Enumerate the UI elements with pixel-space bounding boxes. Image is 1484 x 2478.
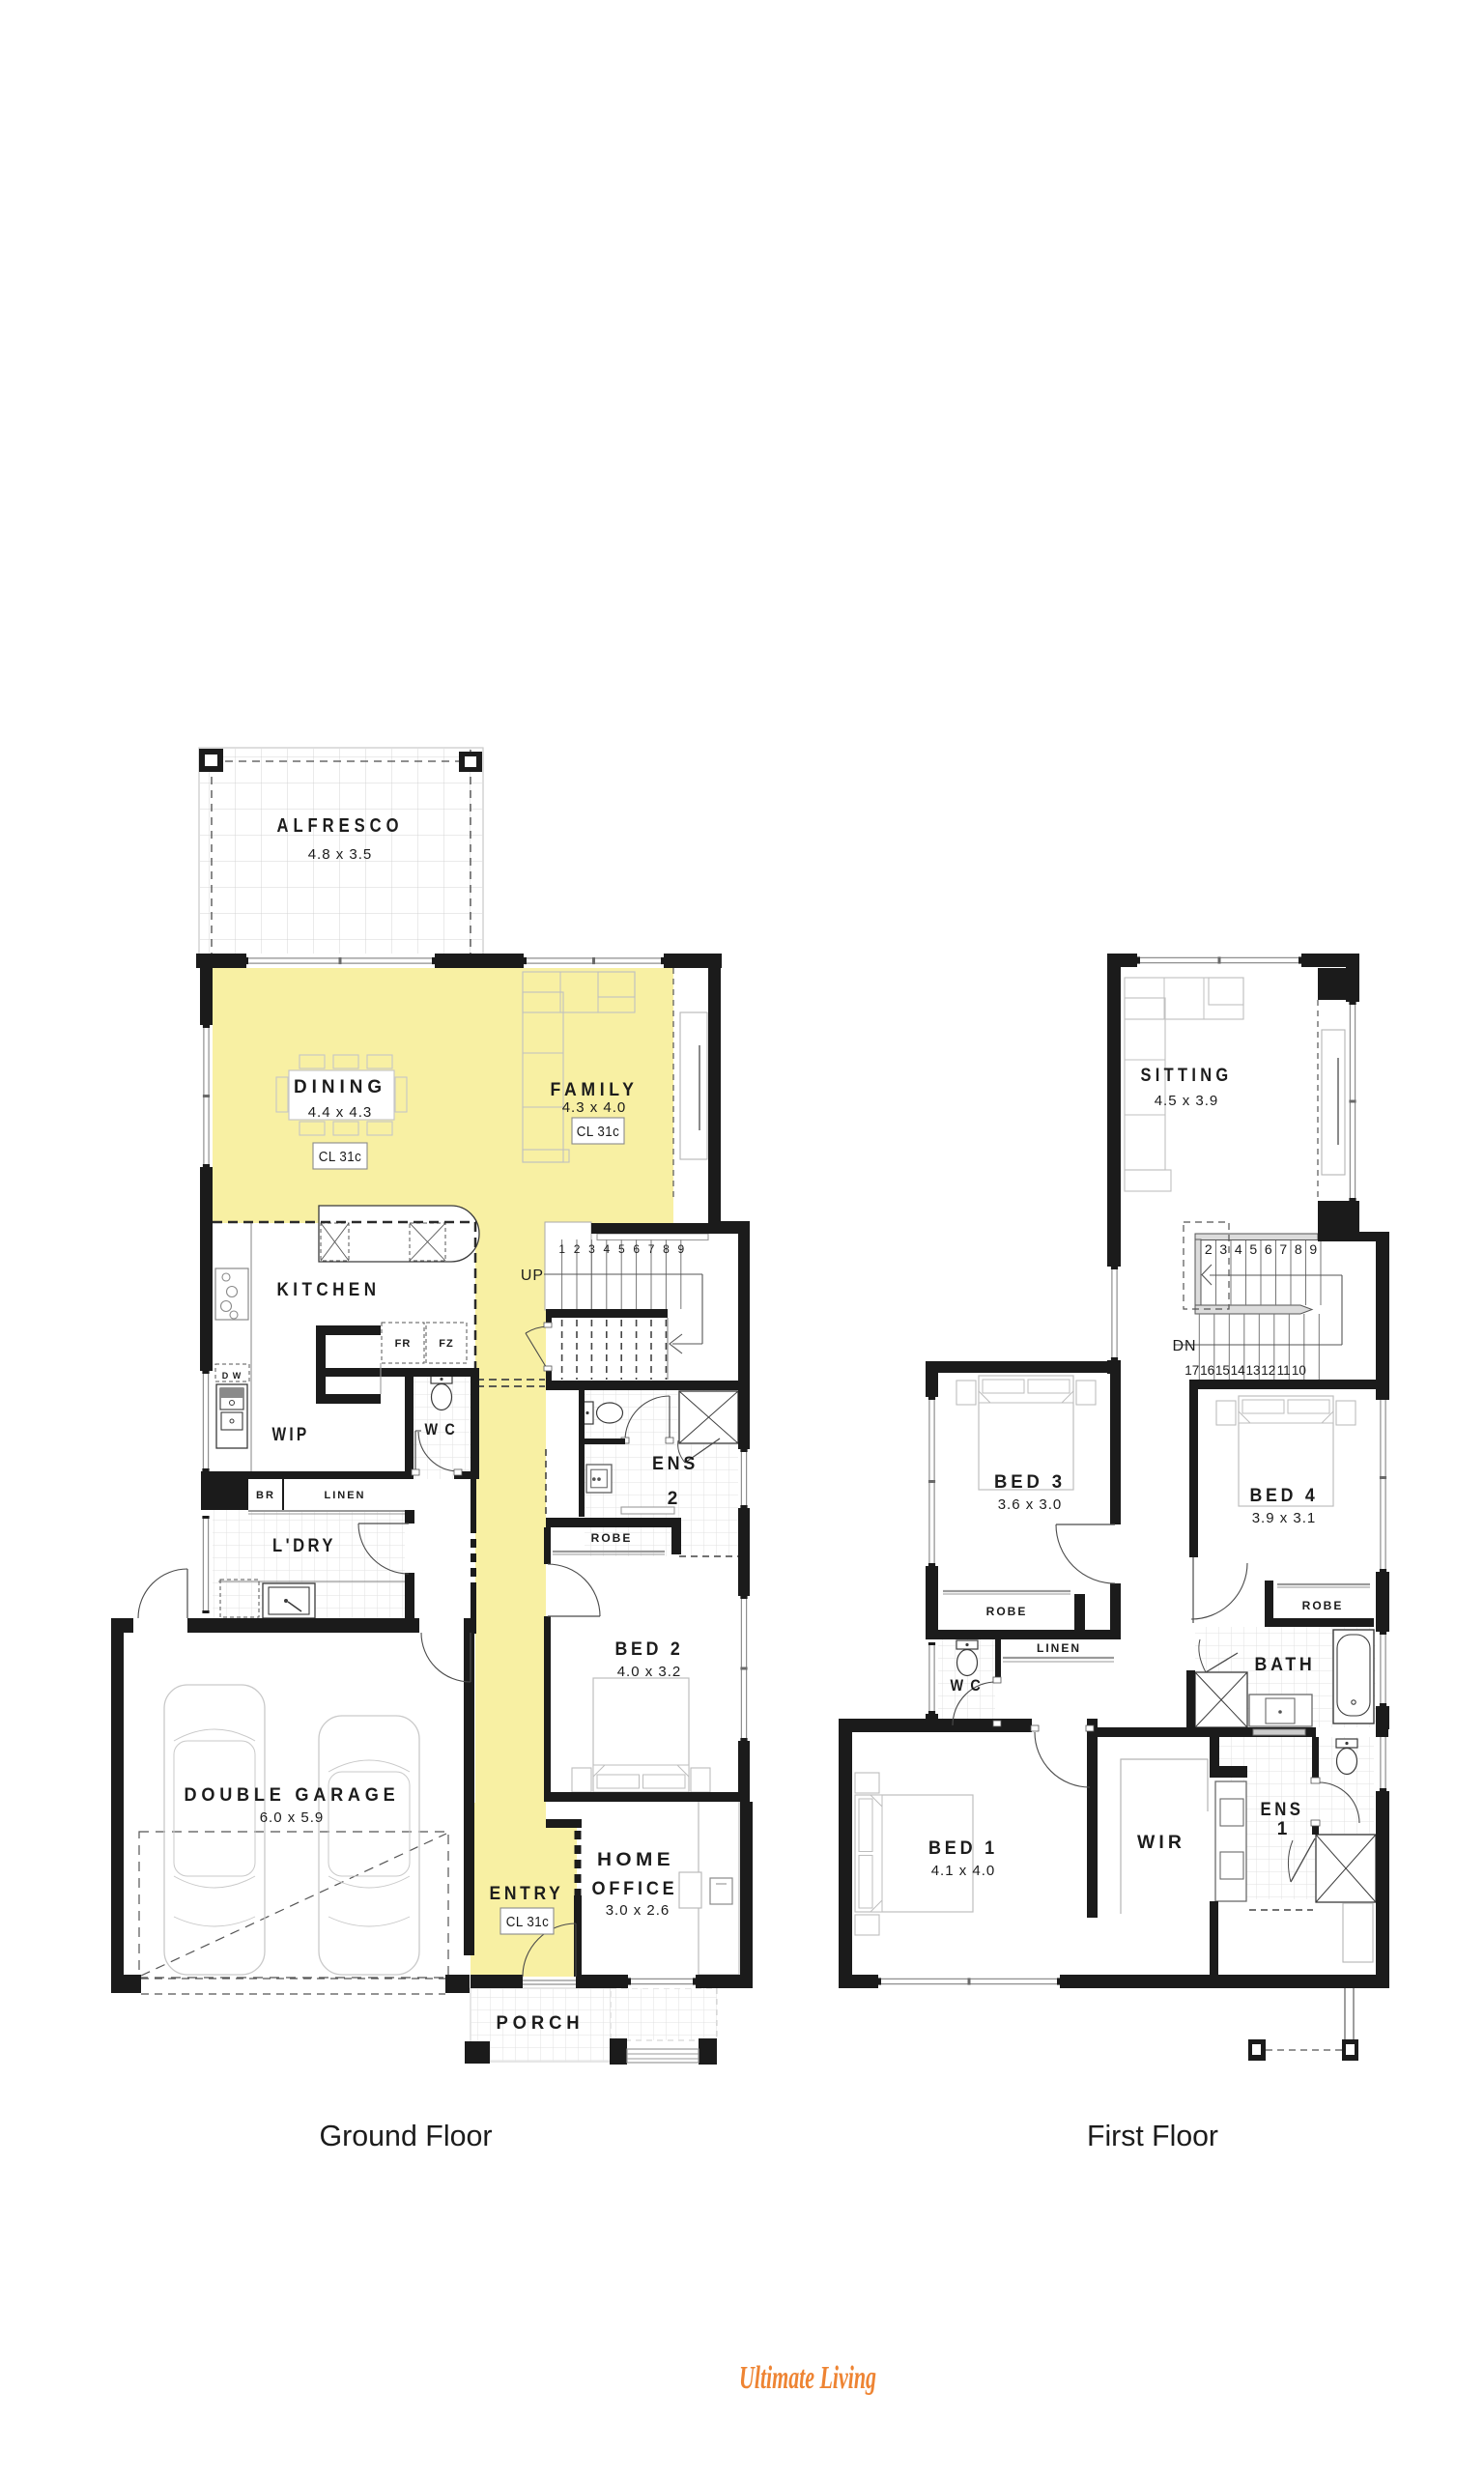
svg-text:ENTRY: ENTRY (490, 1884, 564, 1904)
svg-text:PORCH: PORCH (497, 2013, 585, 2034)
svg-text:DN: DN (1172, 1338, 1196, 1354)
svg-text:WIP: WIP (272, 1425, 310, 1445)
svg-text:5: 5 (618, 1242, 625, 1256)
svg-text:HOME: HOME (597, 1850, 674, 1870)
svg-text:LINEN: LINEN (325, 1490, 366, 1501)
svg-text:3: 3 (588, 1242, 595, 1256)
svg-text:KITCHEN: KITCHEN (277, 1280, 381, 1300)
svg-text:LINEN: LINEN (1037, 1641, 1081, 1655)
svg-text:BED 1: BED 1 (928, 1838, 998, 1859)
svg-text:2: 2 (668, 1489, 678, 1509)
svg-text:8: 8 (1295, 1241, 1302, 1257)
svg-text:17: 17 (1184, 1363, 1199, 1378)
svg-text:First Floor: First Floor (1087, 2119, 1218, 2152)
svg-text:UP: UP (521, 1267, 544, 1284)
svg-text:4: 4 (1235, 1241, 1242, 1257)
svg-text:14: 14 (1231, 1363, 1246, 1378)
svg-text:DINING: DINING (294, 1077, 386, 1097)
svg-text:7: 7 (648, 1242, 655, 1256)
svg-text:7: 7 (1279, 1241, 1287, 1257)
svg-text:W C: W C (425, 1420, 457, 1438)
svg-text:FAMILY: FAMILY (551, 1080, 639, 1100)
svg-text:11: 11 (1277, 1363, 1291, 1378)
svg-text:OFFICE: OFFICE (592, 1879, 678, 1899)
svg-text:16: 16 (1200, 1363, 1214, 1378)
svg-text:ROBE: ROBE (986, 1605, 1028, 1618)
svg-text:6: 6 (1265, 1241, 1272, 1257)
svg-text:BR: BR (256, 1490, 275, 1501)
svg-text:4.5 x 3.9: 4.5 x 3.9 (1155, 1093, 1219, 1109)
svg-text:BED 3: BED 3 (994, 1472, 1066, 1493)
svg-text:12: 12 (1261, 1363, 1275, 1378)
svg-text:9: 9 (678, 1242, 685, 1256)
svg-text:3.6 x 3.0: 3.6 x 3.0 (998, 1496, 1063, 1513)
svg-text:4.0 x 3.2: 4.0 x 3.2 (617, 1664, 682, 1680)
svg-text:6.0 x 5.9: 6.0 x 5.9 (260, 1809, 325, 1826)
svg-text:WIR: WIR (1137, 1833, 1185, 1853)
svg-text:ENS: ENS (652, 1454, 699, 1474)
svg-text:D W: D W (222, 1371, 243, 1381)
svg-text:DOUBLE GARAGE: DOUBLE GARAGE (185, 1785, 400, 1806)
svg-text:8: 8 (663, 1242, 670, 1256)
svg-text:3.0 x 2.6: 3.0 x 2.6 (606, 1902, 671, 1919)
svg-text:CL 31c: CL 31c (577, 1124, 620, 1140)
svg-text:L'DRY: L'DRY (272, 1536, 336, 1556)
svg-text:6: 6 (633, 1242, 640, 1256)
svg-text:1: 1 (558, 1242, 565, 1256)
svg-text:BATH: BATH (1255, 1655, 1316, 1675)
svg-text:CL 31c: CL 31c (319, 1149, 362, 1165)
svg-text:4.3 x 4.0: 4.3 x 4.0 (562, 1099, 627, 1116)
svg-text:9: 9 (1309, 1241, 1317, 1257)
svg-text:Ultimate Living: Ultimate Living (739, 2360, 876, 2396)
svg-text:BED 4: BED 4 (1250, 1486, 1319, 1506)
svg-text:13: 13 (1245, 1363, 1260, 1378)
svg-text:3: 3 (1219, 1241, 1227, 1257)
svg-text:5: 5 (1249, 1241, 1257, 1257)
svg-text:ENS: ENS (1261, 1800, 1304, 1820)
svg-text:FR: FR (395, 1338, 412, 1350)
svg-text:ALFRESCO: ALFRESCO (277, 815, 404, 837)
svg-text:15: 15 (1215, 1363, 1230, 1378)
svg-text:4.4 x 4.3: 4.4 x 4.3 (308, 1104, 373, 1121)
svg-text:Ground Floor: Ground Floor (320, 2119, 493, 2152)
svg-text:4.1 x 4.0: 4.1 x 4.0 (931, 1863, 996, 1879)
svg-text:1: 1 (1277, 1819, 1288, 1839)
svg-text:ROBE: ROBE (591, 1531, 633, 1545)
svg-text:CL 31c: CL 31c (506, 1914, 550, 1930)
svg-text:ROBE: ROBE (1302, 1599, 1344, 1612)
svg-text:4.8 x 3.5: 4.8 x 3.5 (308, 846, 373, 863)
svg-text:3.9 x 3.1: 3.9 x 3.1 (1252, 1510, 1317, 1526)
svg-text:FZ: FZ (439, 1338, 453, 1350)
svg-text:2: 2 (574, 1242, 581, 1256)
svg-text:BED 2: BED 2 (615, 1639, 684, 1660)
svg-text:2: 2 (1205, 1241, 1213, 1257)
svg-text:SITTING: SITTING (1141, 1066, 1233, 1086)
svg-text:4: 4 (604, 1242, 611, 1256)
svg-text:10: 10 (1292, 1363, 1306, 1378)
svg-text:W C: W C (951, 1676, 983, 1695)
